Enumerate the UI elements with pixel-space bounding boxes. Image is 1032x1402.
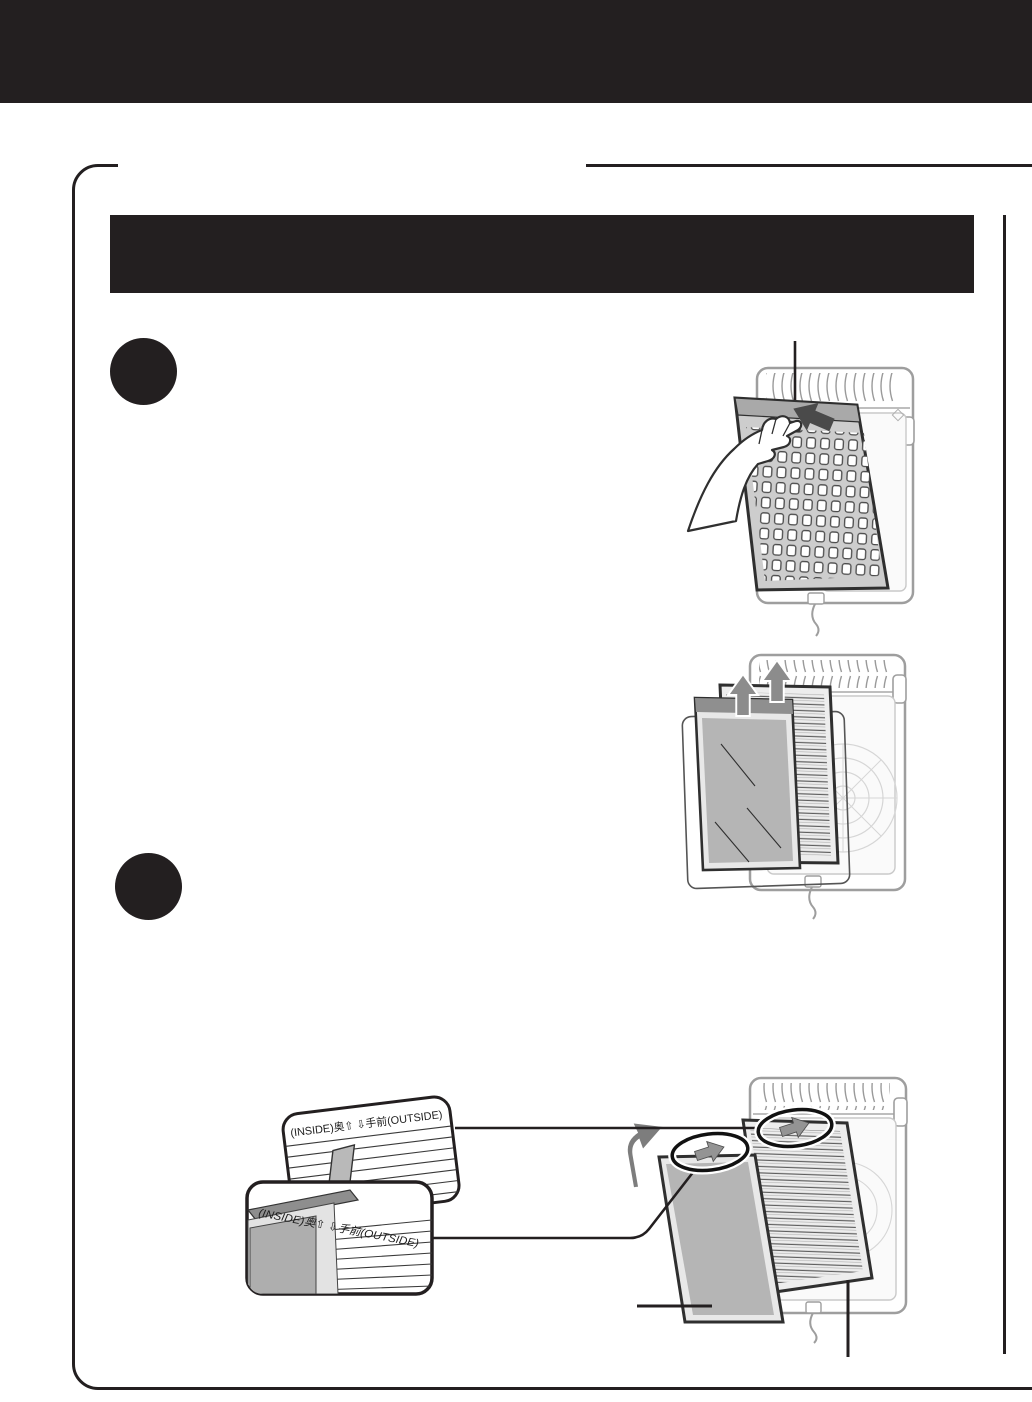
step-1-number-circle: [110, 338, 177, 405]
manual-page: { "colors": { "ink": "#231f20", "paper":…: [0, 0, 1032, 1402]
callout-box-filter-orientation-bottom: (INSIDE)奥⇧ ⇩手前(OUTSIDE): [247, 1182, 432, 1294]
redacted-section-title-bar: [110, 215, 974, 293]
carry-handle: [893, 675, 906, 703]
power-cord: [810, 1313, 816, 1343]
cord-tab: [808, 593, 824, 604]
louver-grill: [758, 1083, 890, 1110]
illustration-filters-removed: [655, 640, 915, 952]
illustration-remove-back-panel: [670, 335, 922, 637]
leader-line-bottom-callout: [432, 1171, 694, 1238]
frame-title-gap: [118, 160, 586, 172]
power-cord: [809, 887, 815, 919]
louver-grill: [766, 373, 896, 404]
illustration-insert-filters: (INSIDE)奥⇧ ⇩手前(OUTSIDE) (INSIDE)奥⇧ ⇩手前(O…: [238, 1070, 1032, 1370]
deodorizing-filter: [695, 698, 800, 870]
power-cord: [812, 604, 818, 636]
redacted-top-banner: [0, 0, 1032, 103]
step-2-number-circle: [115, 853, 182, 920]
